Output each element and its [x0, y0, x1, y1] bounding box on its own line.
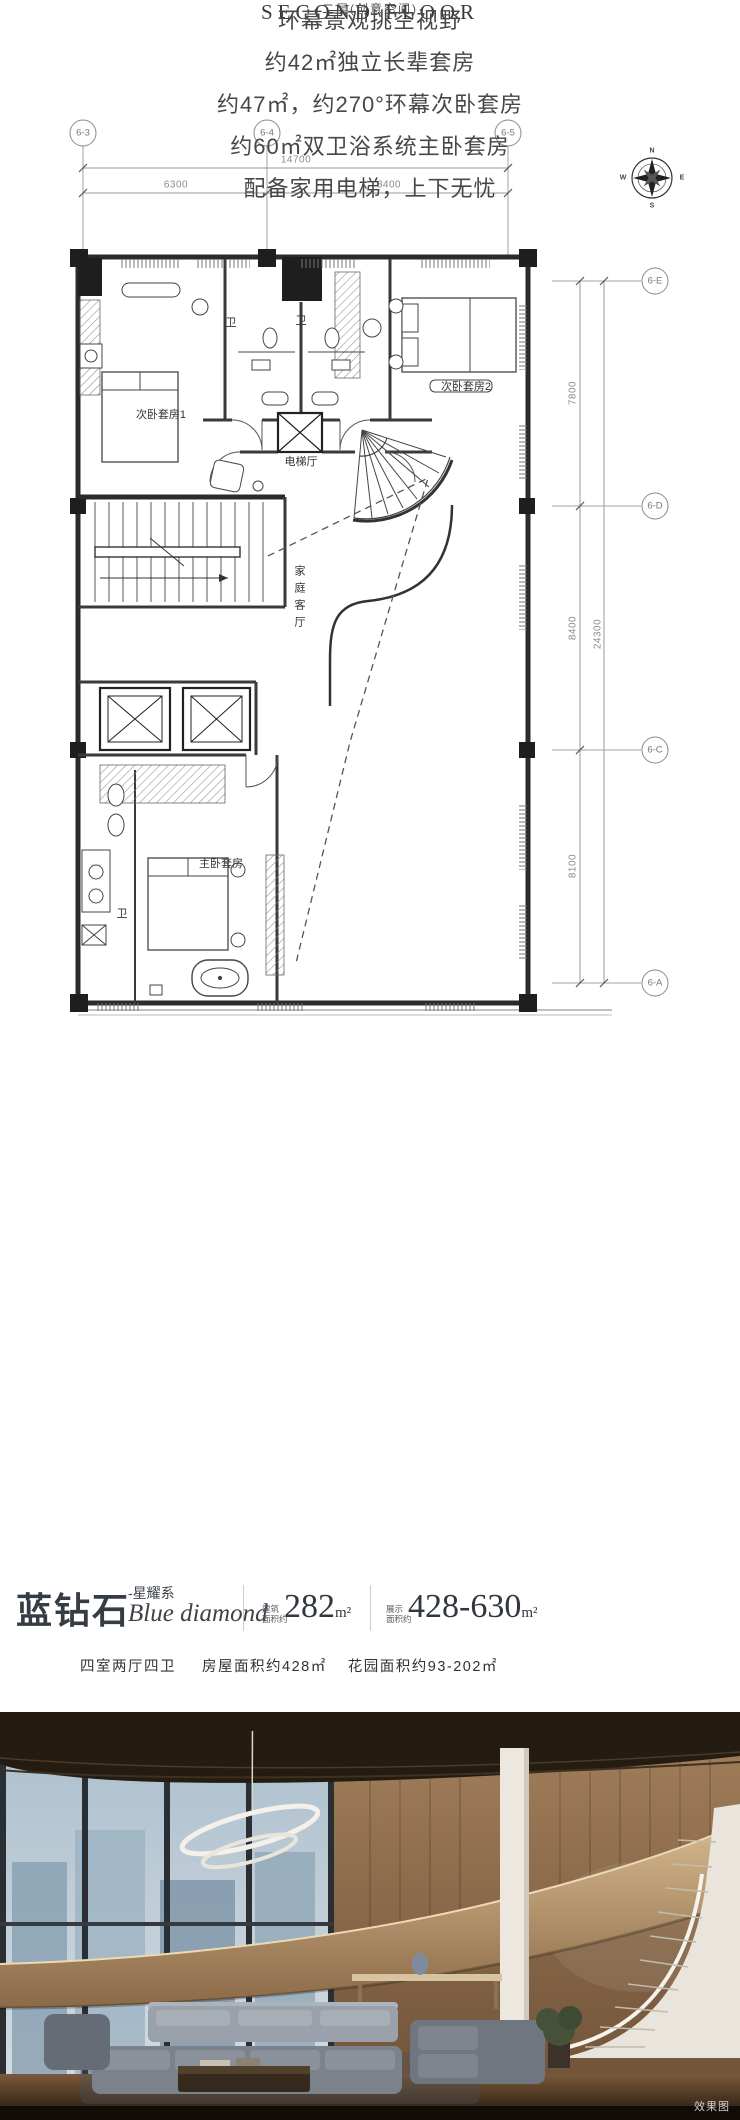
- grid-row-e: 6-E: [648, 276, 663, 287]
- room-label-bath1: 卫: [226, 314, 237, 330]
- dim-right-total: 24300: [593, 619, 604, 649]
- metric1-number: 282: [284, 1588, 335, 1625]
- grid-row-d: 6-D: [647, 501, 662, 512]
- feature-line-5: 配备家用电梯，上下无忧: [0, 168, 740, 210]
- area-house: 房屋面积约428㎡: [202, 1659, 327, 1675]
- feature-line-4: 约60㎡双卫浴系统主卧套房: [0, 126, 740, 168]
- feature-list: 环幕景观挑空视野 约42㎡独立长辈套房 约47㎡，约270°环幕次卧套房 约60…: [0, 0, 740, 210]
- metric1-unit: m²: [335, 1605, 351, 1621]
- bedroom2-furniture: [363, 298, 516, 392]
- room-label-bedroom1: 次卧套房1: [136, 406, 186, 422]
- product-name: 蓝钻石: [16, 1582, 130, 1634]
- divider-1: [243, 1585, 244, 1631]
- grid-row-a: 6-A: [648, 978, 663, 989]
- feature-line-1: 环幕景观挑空视野: [0, 0, 740, 42]
- area-garden: 花园面积约93-202㎡: [348, 1659, 498, 1675]
- room-label-family-room: 家庭客厅: [291, 565, 307, 633]
- photo-bottom-vignette: [0, 2106, 740, 2120]
- dim-right-seg1: 7800: [568, 381, 579, 405]
- master-furniture: [82, 784, 248, 996]
- rendering-watermark: 效果图: [694, 2098, 730, 2114]
- room-label-master-bath: 卫: [117, 905, 128, 921]
- void-boundary: [268, 478, 452, 963]
- room-label-master: 主卧套房: [199, 855, 243, 871]
- grid-row-c: 6-C: [647, 745, 662, 756]
- room-label-bath2: 卫: [296, 312, 307, 328]
- metric2-unit: m²: [521, 1605, 537, 1621]
- room-label-bedroom2: 次卧套房2: [441, 378, 491, 394]
- page: 6-3 6-4 6-5 6-E 6-D 6-C 6-A 14700 6300 8…: [0, 0, 740, 2120]
- feature-line-2: 约42㎡独立长辈套房: [0, 42, 740, 84]
- metric1-value: 282m²: [284, 1588, 351, 1626]
- interior-walls: [78, 259, 432, 1003]
- room-label-elevator-hall: 电梯厅: [285, 453, 318, 469]
- divider-2: [370, 1585, 371, 1631]
- product-name-en: Blue diamond: [128, 1600, 268, 1628]
- metric2-number: 428-630: [408, 1588, 521, 1625]
- feature-line-3: 约47㎡，约270°环幕次卧套房: [0, 84, 740, 126]
- layout-spec: 四室两厅四卫: [80, 1655, 176, 1676]
- area-specs: 房屋面积约428㎡ 花园面积约93-202㎡: [202, 1655, 498, 1676]
- interior-rendering: [0, 1712, 740, 2120]
- family-room-chair: [209, 459, 263, 493]
- dim-right-seg3: 8100: [568, 854, 579, 878]
- dim-right-seg2: 8400: [568, 616, 579, 640]
- metric2-value: 428-630m²: [408, 1588, 538, 1626]
- straight-stair: [95, 502, 263, 602]
